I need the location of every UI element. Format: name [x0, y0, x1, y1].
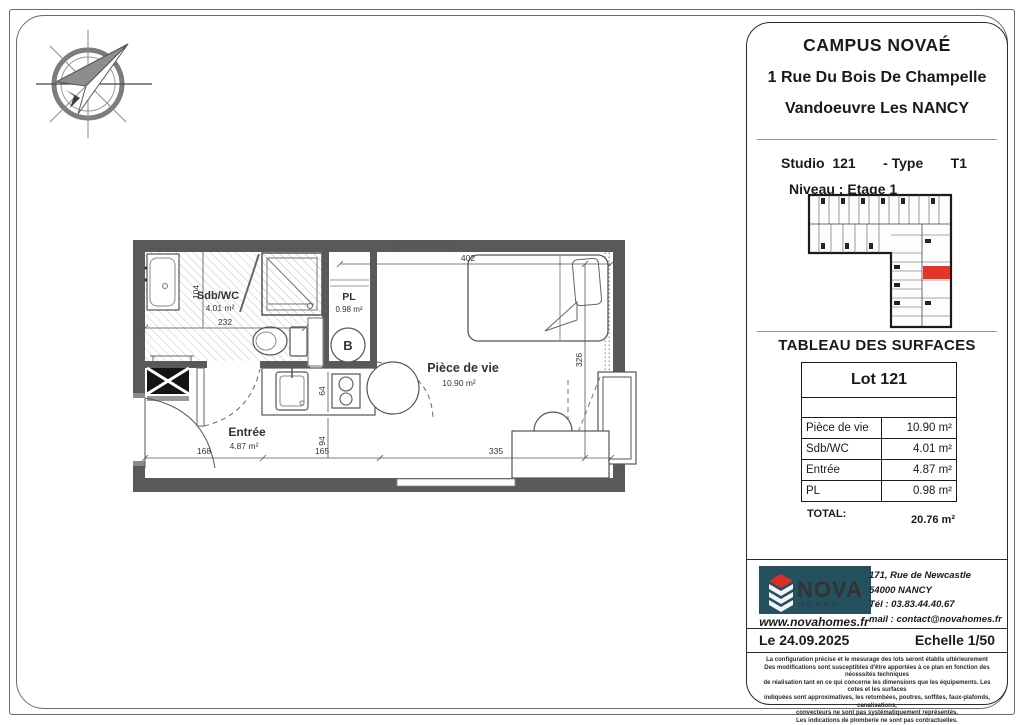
room-label-sdb: Sdb/WC — [197, 290, 239, 302]
row-value: 10.90 m² — [882, 418, 957, 439]
project-header: CAMPUS NOVAÉ 1 Rue Du Bois De Champelle … — [747, 33, 1007, 118]
water-heater-label: B — [343, 338, 352, 353]
unit-studio: Studio 121 — [781, 155, 856, 171]
table-row: Sdb/WC 4.01 m² — [802, 439, 957, 460]
building-overview — [805, 191, 955, 331]
divider — [747, 559, 1007, 560]
svg-text:335: 335 — [489, 446, 503, 456]
svg-text:232: 232 — [218, 317, 232, 327]
unit-type-value: T1 — [951, 155, 967, 171]
compass-north-icon — [36, 30, 152, 138]
room-label-entree: Entrée — [228, 425, 266, 439]
total-value: 20.76 m² — [887, 514, 955, 526]
project-address-2: Vandoeuvre Les NANCY — [747, 100, 1007, 118]
room-label-vie: Pièce de vie — [427, 361, 499, 375]
closet-shelves — [330, 280, 369, 286]
round-table — [367, 362, 419, 414]
floor-plan: B 168 — [0, 0, 745, 724]
legal-disclaimer: La configuration précise et le mesurage … — [755, 657, 999, 725]
table-row: Entrée 4.87 m² — [802, 460, 957, 481]
row-value: 0.98 m² — [882, 481, 957, 502]
divider — [747, 652, 1007, 653]
plan-scale: Echelle 1/50 — [915, 632, 995, 648]
svg-text:402: 402 — [461, 253, 475, 263]
bed — [468, 255, 608, 341]
water-heater: B — [331, 328, 365, 362]
row-label: PL — [802, 481, 882, 502]
company-logo: NOVA HOMES — [759, 566, 871, 614]
technical-shaft — [147, 368, 189, 401]
company-mail: mail : contact@novahomes.fr — [869, 613, 1005, 628]
table-row: PL 0.98 m² — [802, 481, 957, 502]
company-address-1: 171, Rue de Newcastle — [869, 569, 1005, 584]
project-address-1: 1 Rue Du Bois De Champelle — [747, 69, 1007, 87]
room-area-vie: 10.90 m² — [442, 378, 476, 388]
logo-sub-name: HOMES — [799, 602, 840, 609]
row-value: 4.87 m² — [882, 460, 957, 481]
desk — [512, 412, 609, 478]
table-row: Pièce de vie 10.90 m² — [802, 418, 957, 439]
divider — [757, 331, 997, 332]
company-contact: 171, Rue de Newcastle 54000 NANCY Tél : … — [869, 569, 1005, 627]
row-value: 4.01 m² — [882, 439, 957, 460]
room-area-sdb: 4.01 m² — [206, 303, 235, 313]
svg-text:94: 94 — [317, 436, 327, 446]
title-block: CAMPUS NOVAÉ 1 Rue Du Bois De Champelle … — [746, 22, 1008, 705]
company-address-2: 54000 NANCY — [869, 584, 1005, 599]
closet-door — [308, 318, 323, 366]
svg-text:168: 168 — [197, 446, 211, 456]
logo-name: NOVA — [797, 577, 863, 602]
row-label: Entrée — [802, 460, 882, 481]
room-area-pl: 0.98 m² — [335, 305, 362, 314]
footer-row: Le 24.09.2025 Echelle 1/50 — [747, 628, 1007, 652]
threshold — [397, 479, 515, 486]
company-phone: Tél : 03.83.44.40.67 — [869, 598, 1005, 613]
highlighted-unit — [923, 266, 950, 279]
svg-text:326: 326 — [574, 353, 584, 367]
svg-text:165: 165 — [315, 446, 329, 456]
total-label: TOTAL: — [807, 508, 846, 520]
surface-table-title: TABLEAU DES SURFACES — [747, 337, 1007, 354]
plan-date: Le 24.09.2025 — [759, 632, 849, 648]
divider — [757, 139, 997, 140]
surface-table: Lot 121 Pièce de vie 10.90 m² Sdb/WC 4.0… — [801, 362, 957, 502]
row-label: Sdb/WC — [802, 439, 882, 460]
lot-title: Lot 121 — [802, 363, 957, 398]
project-title: CAMPUS NOVAÉ — [747, 35, 1007, 56]
room-label-pl: PL — [342, 291, 356, 303]
bathroom-door — [197, 368, 260, 426]
room-area-entree: 4.87 m² — [230, 441, 259, 451]
company-website: www.novahomes.fr — [753, 615, 875, 629]
unit-type-label: - Type — [883, 155, 923, 171]
row-label: Pièce de vie — [802, 418, 882, 439]
unit-info: Studio 121 - Type T1 — [781, 155, 967, 171]
svg-text:64: 64 — [317, 386, 327, 396]
